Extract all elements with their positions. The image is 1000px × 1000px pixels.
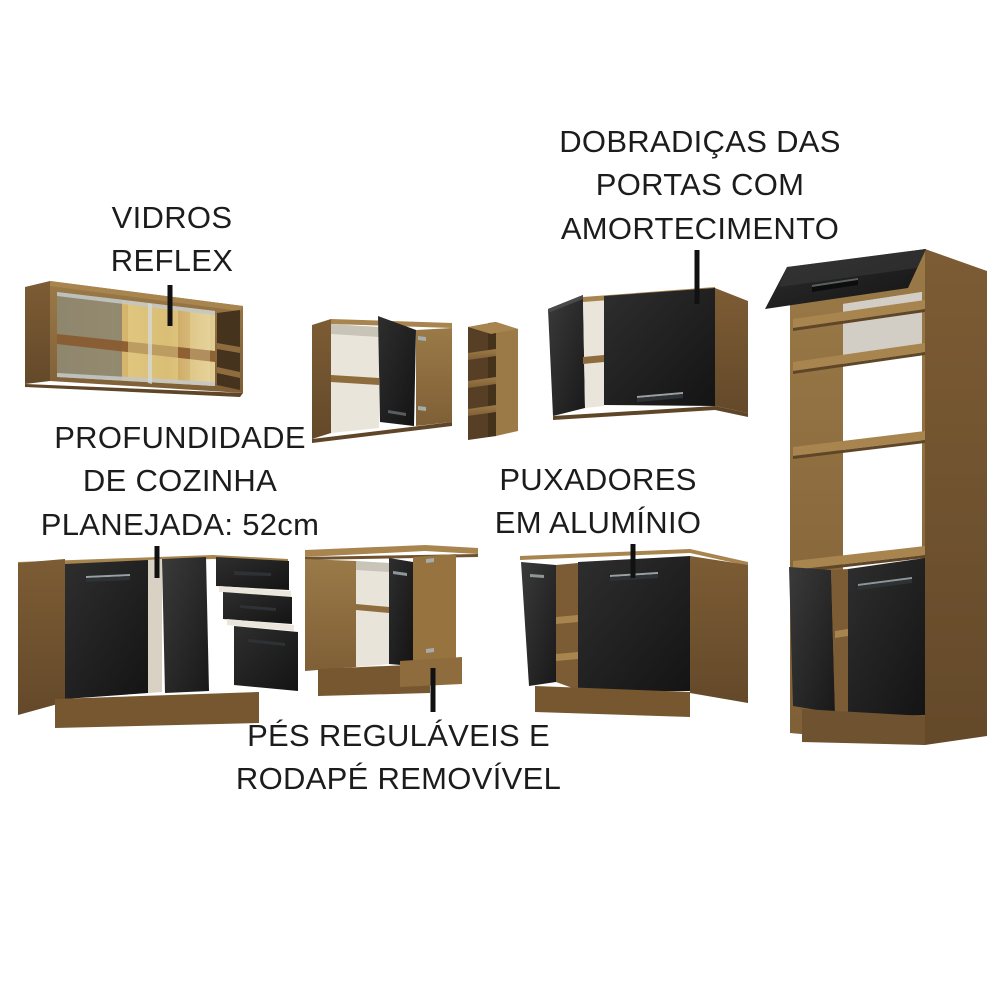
open-interior: [556, 563, 578, 690]
callout-pes: PÉS REGULÁVEIS E RODAPÉ REMOVÍVEL: [226, 714, 571, 801]
black-door-open: [789, 567, 835, 713]
open-interior: [583, 298, 604, 408]
cabinet-side-panel: [18, 559, 65, 715]
open-shelf-unit: [468, 322, 518, 440]
wood-front: [305, 559, 356, 671]
callout-vidros-reflex: VIDROS REFLEX: [62, 196, 282, 283]
cabinet-side-panel: [690, 556, 748, 703]
black-door-closed: [604, 288, 715, 406]
cabinet-side-panel: [496, 322, 518, 436]
black-door-ajar: [162, 557, 209, 693]
cabinet-side-panel: [25, 281, 50, 384]
base-cabinet-with-drawers: [18, 555, 298, 728]
black-door-open: [378, 316, 416, 426]
wood-front: [416, 328, 452, 426]
wood-door: [413, 554, 456, 663]
callout-puxadores: PUXADORES EM ALUMÍNIO: [468, 458, 728, 545]
corner-base-cabinet: [305, 545, 478, 696]
open-interior: [356, 561, 389, 667]
cabinet-side-panel: [715, 288, 748, 413]
countertop: [425, 545, 478, 554]
countertop: [305, 545, 425, 557]
cabinet-side-panel: [925, 249, 987, 745]
tall-oven-cabinet: [765, 249, 987, 745]
callout-profundidade: PROFUNDIDADE DE COZINHA PLANEJADA: 52cm: [22, 416, 338, 546]
callout-dobradicas: DOBRADIÇAS DAS PORTAS COM AMORTECIMENTO: [538, 120, 862, 250]
black-door-open: [521, 562, 556, 686]
open-interior: [148, 559, 162, 693]
wall-cabinet-two-doors: [548, 287, 748, 420]
glass-wall-cabinet: [25, 281, 243, 397]
black-door-open: [548, 295, 585, 416]
drawer-front: [234, 626, 298, 691]
